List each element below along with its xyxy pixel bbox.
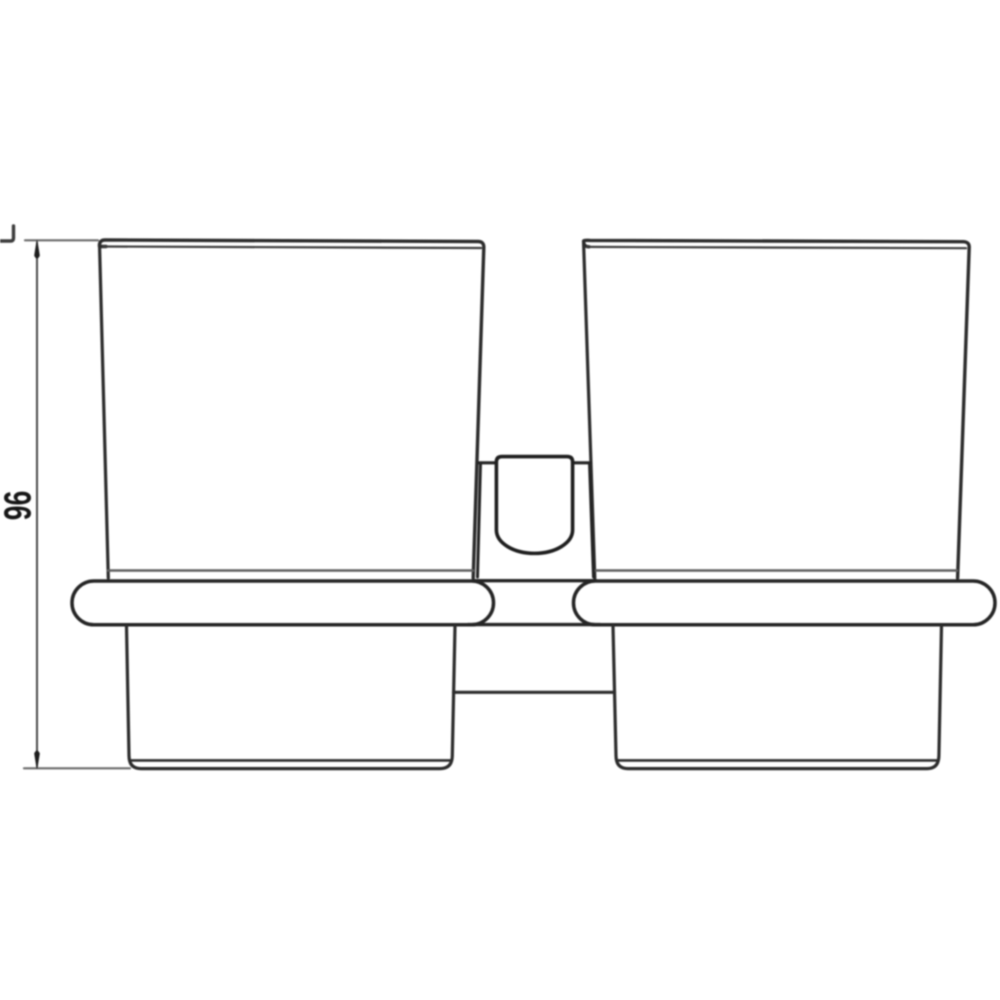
svg-text:96: 96: [0, 491, 39, 521]
